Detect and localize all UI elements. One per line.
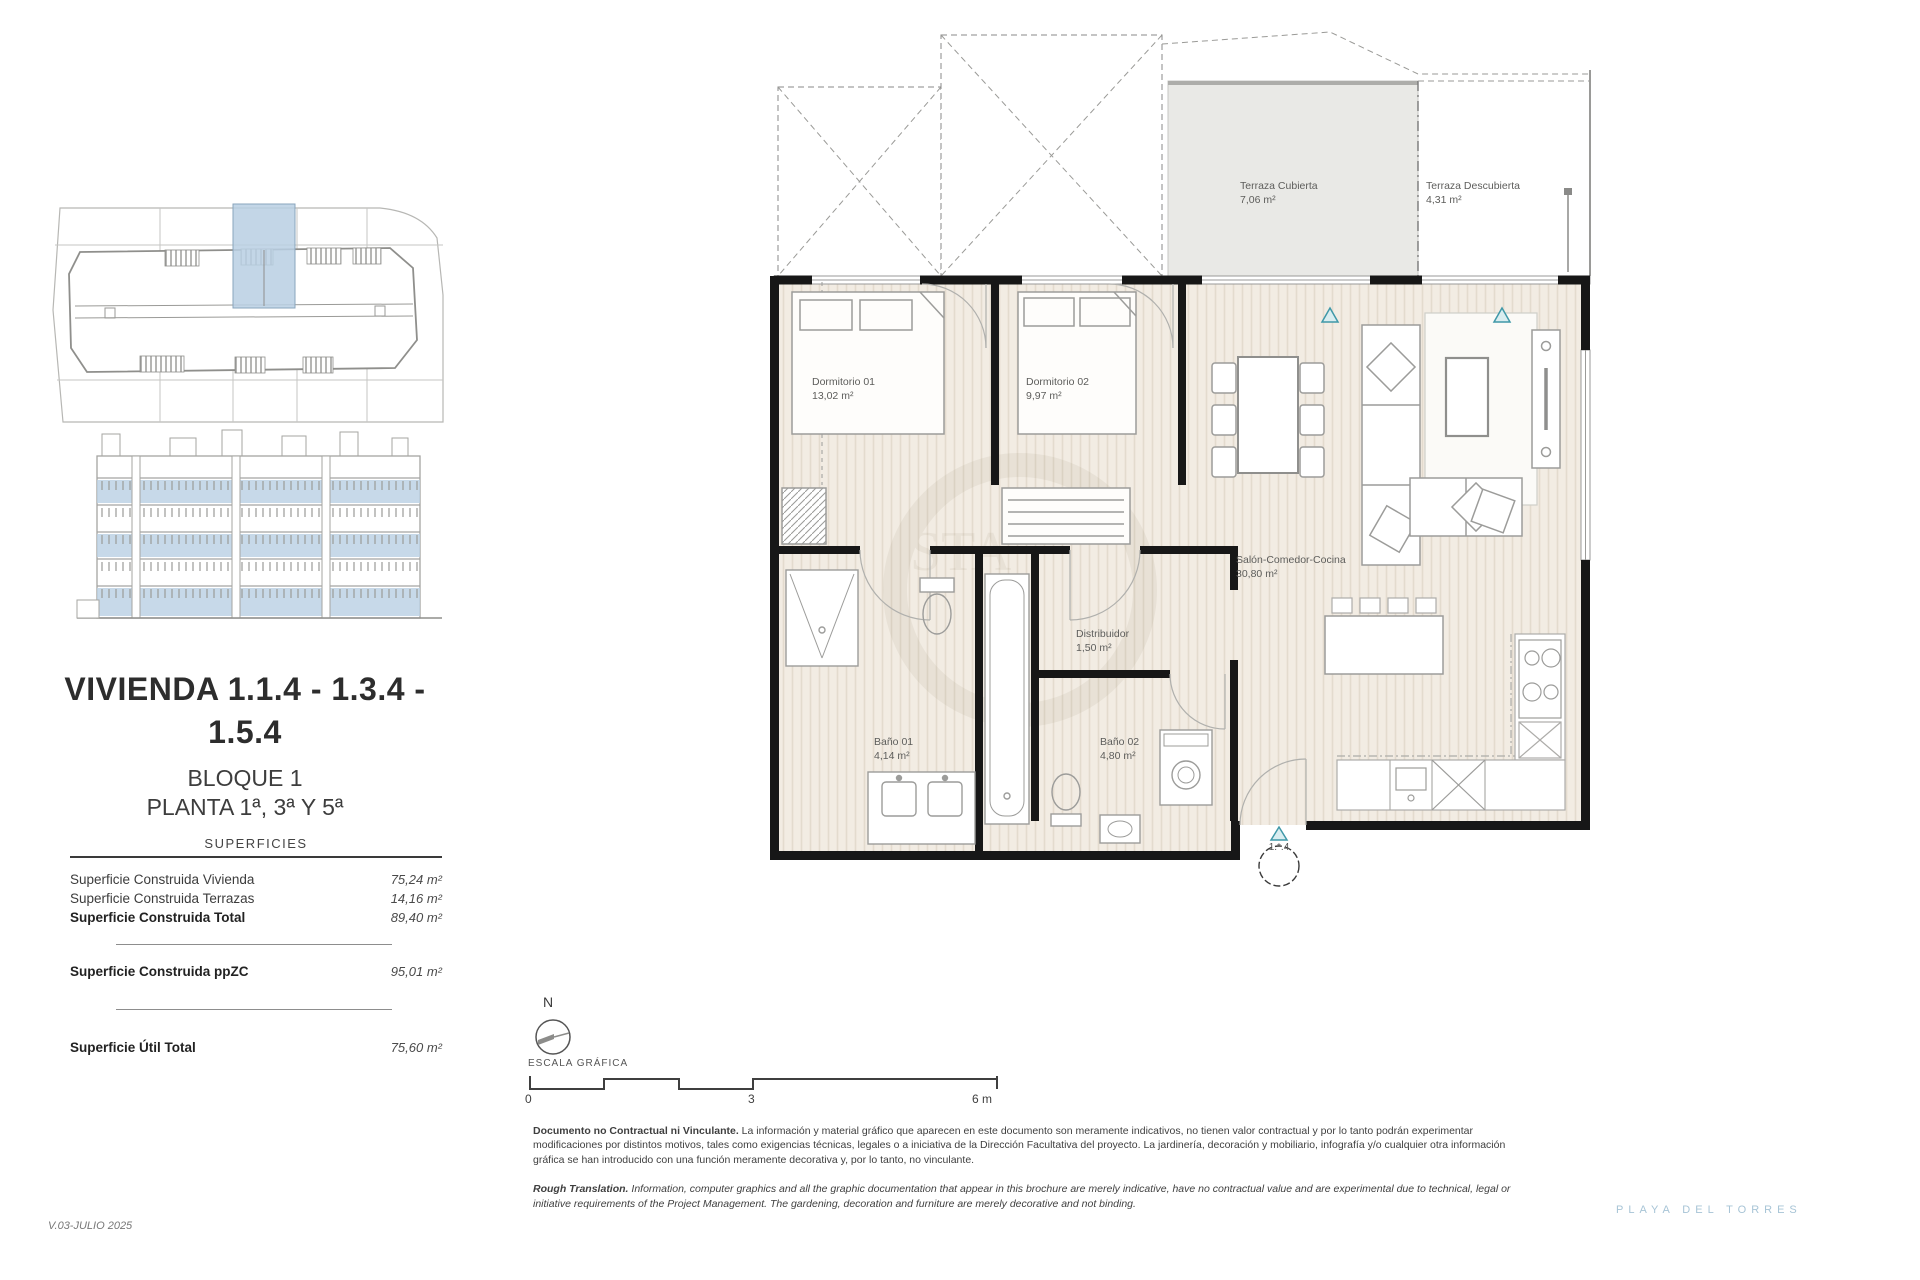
- roof-terrace-zone: [778, 32, 1590, 276]
- surface-row-ppzc: Superficie Construida ppZC 95,01 m²: [70, 962, 442, 981]
- bathtub: [985, 574, 1029, 824]
- room-label-dormitorio-01: Dormitorio 01 13,02 m²: [812, 376, 875, 403]
- surface-row-terrazas: Superficie Construida Terrazas 14,16 m²: [70, 889, 442, 908]
- floor-plan-area: STA: [770, 30, 1600, 910]
- site-plan: [45, 190, 460, 448]
- building-elevation: [72, 428, 447, 648]
- scale-label: ESCALA GRÁFICA: [528, 1058, 628, 1069]
- tv-unit: [1532, 330, 1560, 468]
- unit-title: VIVIENDA 1.1.4 - 1.3.4 - 1.5.4 BLOQUE 1 …: [30, 668, 460, 822]
- north-arrow-icon: [528, 1012, 578, 1062]
- oven-column: [1519, 722, 1561, 758]
- room-label-salon: Salón-Comedor-Cocina 30,80 m²: [1236, 554, 1346, 581]
- room-label-distribuidor: Distribuidor 1,50 m²: [1076, 628, 1129, 655]
- wardrobe-hall: [782, 488, 826, 544]
- floor-label: PLANTA 1ª, 3ª Y 5ª: [30, 793, 460, 822]
- terraza-cubierta-floor: [1168, 81, 1418, 276]
- scale-tick-0: 0: [525, 1092, 532, 1106]
- disclaimer-english: Rough Translation. Information, computer…: [533, 1182, 1511, 1211]
- surface-row-total: Superficie Construida Total 89,40 m²: [70, 908, 442, 927]
- shower: [786, 570, 858, 666]
- graphic-scale-bar: [529, 1074, 999, 1094]
- north-label: N: [543, 994, 553, 1010]
- kitchen-counter: [1337, 760, 1565, 810]
- room-label-bano-01: Baño 01 4,14 m²: [874, 736, 913, 763]
- sofa-horizontal: [1410, 478, 1522, 536]
- scale-tick-6m: 6 m: [972, 1092, 992, 1106]
- title-line-2: 1.5.4: [30, 711, 460, 754]
- divider: [116, 944, 392, 945]
- brand-playa-del-torres: PLAYA DEL TORRES: [1616, 1204, 1802, 1216]
- surface-row-vivienda: Superficie Construida Vivienda 75,24 m²: [70, 870, 442, 889]
- entrance-marker-icon: [1271, 827, 1287, 840]
- washer-column: [1160, 730, 1212, 805]
- title-line-1: VIVIENDA 1.1.4 - 1.3.4 -: [30, 668, 460, 711]
- room-label-terraza-cubierta: Terraza Cubierta 7,06 m²: [1240, 180, 1318, 207]
- version-label: V.03-JULIO 2025: [48, 1220, 132, 1232]
- surfaces-header: SUPERFICIES: [70, 836, 442, 858]
- closet-dormitorio-02: [1002, 488, 1130, 544]
- stove: [1519, 640, 1561, 718]
- brochure-page: VIVIENDA 1.1.4 - 1.3.4 - 1.5.4 BLOQUE 1 …: [0, 0, 1920, 1280]
- floor-plan-drawing: STA: [770, 30, 1600, 910]
- disclaimer-spanish: Documento no Contractual ni Vinculante. …: [533, 1124, 1511, 1167]
- surface-row-util: Superficie Útil Total 75,60 m²: [70, 1038, 442, 1057]
- coffee-table: [1446, 358, 1488, 436]
- entrance-unit-label: 1.*.4: [1254, 842, 1304, 853]
- scale-tick-3: 3: [748, 1092, 755, 1106]
- block-label: BLOQUE 1: [30, 764, 460, 793]
- sink-bano-02: [1100, 815, 1140, 843]
- room-label-dormitorio-02: Dormitorio 02 9,97 m²: [1026, 376, 1089, 403]
- vanity-double-sink: [868, 772, 975, 844]
- room-label-terraza-descubierta: Terraza Descubierta 4,31 m²: [1426, 180, 1520, 207]
- room-label-bano-02: Baño 02 4,80 m²: [1100, 736, 1139, 763]
- disclaimer: Documento no Contractual ni Vinculante. …: [533, 1124, 1511, 1211]
- divider: [116, 1009, 392, 1010]
- dining-table-set: [1212, 357, 1324, 477]
- surfaces-table: SUPERFICIES Superficie Construida Vivien…: [70, 836, 442, 1057]
